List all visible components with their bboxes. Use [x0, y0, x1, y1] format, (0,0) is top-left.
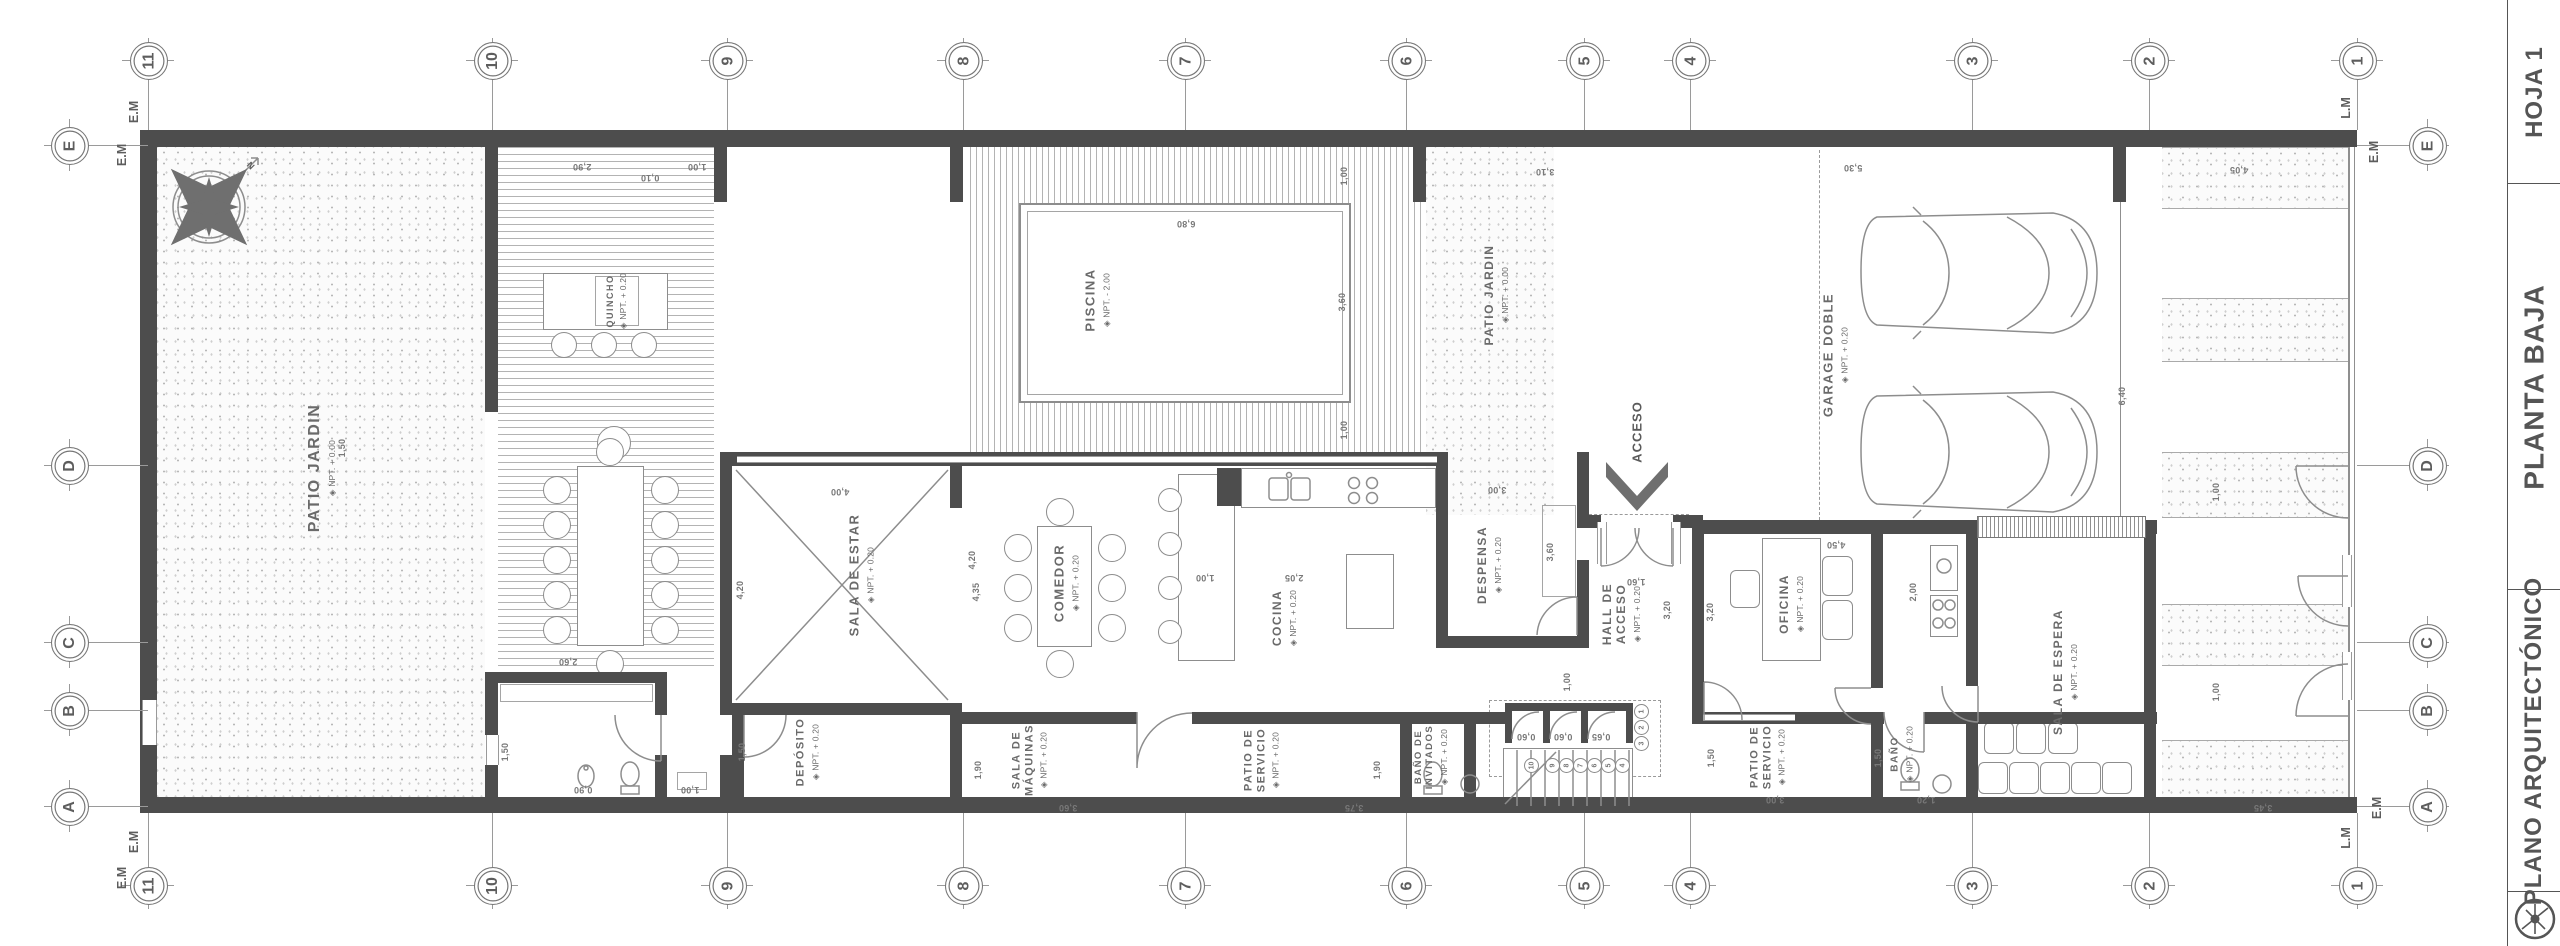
- room-name: BAÑO DE INVITADOS: [1414, 725, 1436, 790]
- room-elevation: ◈ NPT. + 0.20: [1271, 728, 1282, 792]
- room-elevation-value: NPT. + 0.20: [1632, 586, 1642, 633]
- plan-name: PLANTA BAJA: [2519, 284, 2551, 489]
- npt-marker-icon: ◈: [1288, 637, 1298, 646]
- room-elevation: ◈ NPT. + 0.20: [1070, 544, 1081, 622]
- grid-bubble-label: 8: [955, 882, 973, 891]
- dimension-label: 4,20: [735, 581, 745, 600]
- bidet: [578, 765, 594, 787]
- grid-bubble-label: 4: [1682, 882, 1700, 891]
- room-elevation-value: NPT. + 0.20: [1904, 726, 1914, 773]
- kitchenette-sink: [1937, 559, 1951, 573]
- grid-bubble-label: 2: [2141, 882, 2159, 891]
- dimension-label: 2,60: [559, 657, 578, 667]
- room-label: PISCINA◈ NPT. - 2.00: [1084, 268, 1113, 331]
- stove-burner: [1933, 618, 1943, 628]
- room-elevation: ◈ NPT. + 0.20: [810, 718, 821, 787]
- grid-bubble-label: A: [61, 801, 79, 813]
- room-name: DESPENSA: [1476, 526, 1490, 604]
- npt-marker-icon: ◈: [1493, 584, 1503, 593]
- grid-bubble-label: 10: [484, 877, 502, 895]
- dimension-label: 1,90: [973, 761, 983, 780]
- dimension-label: 6,80: [1177, 219, 1196, 229]
- room-elevation: ◈ NPT. + 0.20: [1839, 293, 1850, 417]
- room-name: HALL DE ACCESO: [1601, 583, 1629, 645]
- room-elevation-value: NPT. + 0.20: [2069, 644, 2079, 691]
- dimension-label: 3,10: [1536, 167, 1555, 177]
- grid-bubble-row: A: [2409, 788, 2447, 826]
- linework-overlay: [0, 0, 2560, 946]
- stair-tread-number: 6: [1587, 758, 1602, 773]
- stove-burner: [1945, 618, 1955, 628]
- grid-bubble-label: E: [2419, 141, 2437, 152]
- room-label: COMEDOR◈ NPT. + 0.20: [1053, 544, 1082, 622]
- dimension-label: 4,35: [971, 583, 981, 602]
- room-name: SALA DE ESTAR: [848, 514, 863, 637]
- door-arc: [744, 715, 786, 757]
- stove-burner: [1367, 478, 1378, 489]
- gate-arc: [2296, 466, 2348, 518]
- sheet-number: HOJA 1: [2521, 46, 2549, 138]
- npt-marker-icon: ◈: [1839, 374, 1849, 383]
- room-name: COMEDOR: [1053, 544, 1068, 622]
- room-label: BAÑO DE INVITADOS◈ NPT. + 0.20: [1414, 725, 1450, 790]
- room-name: DEPÓSITO: [795, 718, 808, 787]
- room-elevation: ◈ NPT. + 0.20: [1777, 725, 1788, 789]
- stair-tread-number: 5: [1601, 758, 1616, 773]
- tread-number-label: 7: [1577, 764, 1584, 768]
- npt-marker-icon: ◈: [1101, 318, 1111, 327]
- car-icon: [1861, 386, 2097, 518]
- grid-bubble-row: C: [2409, 624, 2447, 662]
- annotation-label: ACCESO: [1630, 401, 1645, 463]
- dimension-label: 1,00: [1339, 167, 1349, 186]
- grid-bubble-column: 10: [474, 42, 512, 80]
- dimension-label: 0,90: [574, 785, 593, 795]
- room-elevation: ◈ NPT. + 0.20: [1904, 726, 1915, 782]
- grid-bubble-label: C: [61, 637, 79, 649]
- grid-bubble-column: 2: [2131, 867, 2169, 905]
- dimension-label: 2,90: [573, 162, 592, 172]
- boundary-label: L.M: [2339, 827, 2353, 849]
- door-arc: [1835, 688, 1871, 724]
- grid-bubble-column: 6: [1388, 42, 1426, 80]
- dimension-label: 4,05: [2230, 165, 2249, 175]
- dimension-label: 3,00: [1488, 485, 1507, 495]
- sink-bowl: [1291, 478, 1310, 500]
- grid-bubble-row: E: [51, 127, 89, 165]
- tread-number-label: 1: [1638, 710, 1645, 714]
- grid-bubble-column: 2: [2131, 42, 2169, 80]
- grid-bubble-label: 5: [1576, 57, 1594, 66]
- grid-bubble-label: D: [2419, 460, 2437, 472]
- room-elevation-value: NPT. + 0.20: [1271, 732, 1281, 779]
- room-elevation: ◈ NPT. + 0.20: [1439, 725, 1450, 790]
- stove-burner: [1933, 600, 1943, 610]
- room-label: DESPENSA◈ NPT. + 0.20: [1476, 526, 1504, 604]
- grid-bubble-row: A: [51, 788, 89, 826]
- toilet-tank: [1901, 782, 1919, 790]
- grid-bubble-column: 5: [1566, 867, 1604, 905]
- dimension-label: 0,60: [1554, 732, 1573, 742]
- room-elevation: ◈ NPT. + 0.20: [1632, 583, 1643, 645]
- room-label: HALL DE ACCESO◈ NPT. + 0.20: [1601, 583, 1643, 645]
- room-elevation: ◈ NPT. + 0.00: [327, 404, 338, 533]
- npt-marker-icon: ◈: [1039, 779, 1049, 788]
- grid-bubble-column: 7: [1167, 42, 1205, 80]
- stair-tread-number: 9: [1545, 758, 1560, 773]
- room-label: SALA DE ESTAR◈ NPT. + 0.20: [848, 514, 877, 637]
- grid-bubble-column: 5: [1566, 42, 1604, 80]
- dimension-label: 1,00: [681, 785, 700, 795]
- stair-tread-number: 3: [1634, 736, 1649, 751]
- npt-marker-icon: ◈: [2069, 691, 2079, 700]
- grid-bubble-column: 4: [1672, 867, 1710, 905]
- grid-bubble-label: B: [61, 705, 79, 717]
- dimension-label: 4,00: [831, 487, 850, 497]
- room-label: QUINCHO◈ NPT. + 0.20: [605, 273, 629, 329]
- npt-marker-icon: ◈: [1439, 776, 1449, 785]
- room-elevation: ◈ NPT. + 0.20: [865, 514, 876, 637]
- stove-burner: [1349, 478, 1360, 489]
- dimension-label: 1,00: [2211, 683, 2221, 702]
- stair-tread-number: 8: [1559, 758, 1574, 773]
- grid-bubble-label: E: [61, 141, 79, 152]
- dimension-label: 6,40: [2117, 387, 2127, 406]
- dimension-label: 1,50: [737, 743, 747, 762]
- dimension-label: 2,05: [1285, 573, 1304, 583]
- grid-bubble-column: 3: [1954, 42, 1992, 80]
- dimension-label: 3,60: [1059, 803, 1078, 813]
- grid-bubble-label: D: [61, 460, 79, 472]
- grid-bubble-label: 8: [955, 57, 973, 66]
- title-block-logo-box: [2508, 892, 2560, 946]
- boundary-label: E.M: [115, 144, 129, 166]
- grid-bubble-row: E: [2409, 127, 2447, 165]
- dimension-label: 1,00: [688, 162, 707, 172]
- grid-bubble-label: 2: [2141, 57, 2159, 66]
- npt-marker-icon: ◈: [865, 594, 875, 603]
- room-name: PATIO JARDIN: [1483, 245, 1497, 346]
- grid-bubble-column: 9: [709, 867, 747, 905]
- dimension-label: 0,10: [641, 173, 660, 183]
- room-elevation: ◈ NPT. + 0.00: [1500, 245, 1511, 346]
- dimension-label: 3,20: [1705, 603, 1715, 622]
- grid-bubble-label: 1: [2349, 57, 2367, 66]
- room-label: OFICINA◈ NPT. + 0.20: [1778, 574, 1806, 634]
- room-elevation: ◈ NPT. + 0.20: [618, 273, 629, 329]
- room-name: PISCINA: [1084, 268, 1099, 331]
- floor-plan-sheet: HOJA 1 PLANTA BAJA PLANO ARQUITECTÓNICO …: [0, 0, 2560, 946]
- grid-bubble-label: 7: [1177, 57, 1195, 66]
- stair-tread-number: 4: [1615, 758, 1630, 773]
- gate-arc: [2296, 664, 2348, 716]
- dimension-label: 1,00: [1562, 673, 1572, 692]
- dimension-label: 1,00: [2211, 483, 2221, 502]
- boundary-label: E.M: [2370, 797, 2384, 819]
- grid-bubble-row: B: [2409, 692, 2447, 730]
- room-elevation: ◈ NPT. + 0.20: [2069, 609, 2080, 735]
- room-name: BAÑO: [1889, 726, 1901, 782]
- room-name: PATIO DE SERVICIO: [1242, 728, 1267, 792]
- dimension-label: 1,50: [1873, 749, 1883, 768]
- grid-bubble-row: D: [51, 447, 89, 485]
- room-label: SALA DE ESPERA◈ NPT. + 0.20: [2052, 609, 2080, 735]
- sink-bowl: [1269, 478, 1288, 500]
- dimension-label: 4,20: [967, 551, 977, 570]
- room-elevation-value: NPT. + 0.20: [1493, 537, 1503, 584]
- boundary-label: E.M: [2367, 141, 2381, 163]
- npt-marker-icon: ◈: [1500, 314, 1510, 323]
- stair-tread-number: 2: [1634, 720, 1649, 735]
- grid-bubble-column: 9: [709, 42, 747, 80]
- grid-bubble-label: C: [2419, 637, 2437, 649]
- grid-bubble-row: C: [51, 624, 89, 662]
- title-block: HOJA 1 PLANTA BAJA PLANO ARQUITECTÓNICO: [2507, 0, 2560, 946]
- door-arc: [1942, 686, 1978, 722]
- room-elevation: ◈ NPT. + 0.20: [1795, 574, 1806, 634]
- room-elevation: ◈ NPT. + 0.20: [1288, 590, 1299, 646]
- grid-bubble-label: 5: [1576, 882, 1594, 891]
- tread-number-label: 3: [1638, 742, 1645, 746]
- room-elevation-value: NPT. + 0.20: [1070, 555, 1080, 602]
- grid-bubble-column: 3: [1954, 867, 1992, 905]
- npt-marker-icon: ◈: [1271, 779, 1281, 788]
- firm-logo-icon: [2512, 896, 2558, 942]
- tread-number-label: 4: [1619, 764, 1626, 768]
- door-arc: [1537, 597, 1577, 635]
- grid-bubble-column: 1: [2339, 42, 2377, 80]
- boundary-label: E.M: [115, 867, 129, 889]
- dimension-label: 3,60: [1545, 543, 1555, 562]
- room-elevation: ◈ NPT. + 0.20: [1039, 724, 1050, 796]
- dimension-label: 1,00: [1339, 421, 1349, 440]
- dimension-label: 3,45: [2254, 803, 2273, 813]
- double-height-x-mark: [736, 470, 948, 700]
- boundary-label: L.M: [2339, 97, 2353, 119]
- stair-tread-number: 10: [1524, 758, 1539, 773]
- room-elevation-value: NPT. + 0.20: [1439, 729, 1449, 776]
- npt-marker-icon: ◈: [1777, 776, 1787, 785]
- npt-marker-icon: ◈: [1632, 633, 1642, 642]
- grid-bubble-label: 11: [140, 878, 158, 895]
- grid-bubble-label: 9: [719, 882, 737, 891]
- tread-number-label: 6: [1591, 764, 1598, 768]
- grid-bubble-label: 10: [484, 52, 502, 70]
- room-label: DEPÓSITO◈ NPT. + 0.20: [795, 718, 822, 787]
- npt-marker-icon: ◈: [1904, 773, 1914, 782]
- title-block-drawing-type: PLANO ARQUITECTÓNICO: [2508, 590, 2560, 892]
- npt-marker-icon: ◈: [618, 320, 628, 329]
- toilet: [621, 762, 639, 786]
- faucet: [1287, 473, 1292, 478]
- room-elevation-value: NPT. + 0.00: [327, 440, 337, 487]
- grid-bubble-column: 4: [1672, 42, 1710, 80]
- room-label: PATIO JARDIN◈ NPT. + 0.00: [306, 404, 338, 533]
- boundary-label: E.M: [127, 101, 141, 123]
- room-label: PATIO DE SERVICIO◈ NPT. + 0.20: [1242, 728, 1281, 792]
- dimension-label: 3,00: [1766, 795, 1785, 805]
- dimension-label: 1,90: [1372, 761, 1382, 780]
- dimension-label: 5,30: [1844, 163, 1863, 173]
- grid-bubble-label: 7: [1177, 882, 1195, 891]
- grid-bubble-label: A: [2419, 801, 2437, 813]
- room-label: PATIO DE SERVICIO◈ NPT. + 0.20: [1748, 725, 1787, 789]
- grid-bubble-column: 10: [474, 867, 512, 905]
- room-elevation-value: NPT. + 0.20: [1288, 590, 1298, 637]
- room-name: GARAGE DOBLE: [1822, 293, 1837, 417]
- room-elevation-value: NPT. + 0.00: [1500, 267, 1510, 314]
- room-name: SALA DE ESPERA: [2052, 609, 2066, 735]
- tread-number-label: 9: [1549, 764, 1556, 768]
- room-label: COCINA◈ NPT. + 0.20: [1271, 590, 1299, 646]
- dimension-label: 2,00: [1908, 583, 1918, 602]
- acceso-arrow-icon: [1606, 462, 1668, 511]
- room-name: QUINCHO: [605, 273, 615, 329]
- room-name: COCINA: [1271, 590, 1285, 646]
- grid-bubble-column: 8: [945, 42, 983, 80]
- room-elevation: ◈ NPT. + 0.20: [1493, 526, 1504, 604]
- dimension-label: 0,65: [1592, 732, 1611, 742]
- tread-number-label: 5: [1605, 764, 1612, 768]
- grid-bubble-column: 6: [1388, 867, 1426, 905]
- room-label: BAÑO◈ NPT. + 0.20: [1889, 726, 1915, 782]
- drawing-type: PLANO ARQUITECTÓNICO: [2521, 576, 2549, 904]
- dimension-label: 1,50: [337, 439, 347, 458]
- dimension-label: 3,60: [1337, 293, 1347, 312]
- dimension-label: 1,20: [1917, 795, 1936, 805]
- grid-bubble-column: 11: [130, 867, 168, 905]
- room-elevation-value: NPT. + 0.20: [1795, 576, 1805, 623]
- grid-bubble-label: 3: [1964, 882, 1982, 891]
- npt-marker-icon: ◈: [327, 487, 337, 496]
- door-arc: [615, 715, 661, 761]
- stove-burner: [1945, 600, 1955, 610]
- washbasin: [1933, 775, 1951, 793]
- room-label: SALA DE MÁQUINAS◈ NPT. + 0.20: [1010, 724, 1049, 796]
- dimension-label: 0,60: [1517, 732, 1536, 742]
- room-name: OFICINA: [1778, 574, 1792, 634]
- npt-marker-icon: ◈: [810, 771, 820, 780]
- dimension-label: 1,50: [500, 743, 510, 762]
- stove-burner: [1367, 493, 1378, 504]
- grid-bubble-label: B: [2419, 705, 2437, 717]
- grid-bubble-column: 11: [130, 42, 168, 80]
- dimension-label: 3,20: [1662, 601, 1672, 620]
- entry-door-arc: [1635, 528, 1673, 566]
- room-name: SALA DE MÁQUINAS: [1010, 724, 1035, 796]
- grid-bubble-label: 6: [1398, 57, 1416, 66]
- dimension-label: 1,00: [1196, 573, 1215, 583]
- grid-bubble-label: 11: [140, 53, 158, 70]
- washbasin: [1461, 775, 1479, 793]
- grid-bubble-label: 4: [1682, 57, 1700, 66]
- gate-arc: [2298, 576, 2348, 626]
- tread-number-label: 10: [1528, 762, 1535, 770]
- grid-bubble-label: 6: [1398, 882, 1416, 891]
- dimension-label: 3,75: [1345, 803, 1364, 813]
- entry-door-arc: [1601, 528, 1639, 566]
- title-block-plan-name: PLANTA BAJA: [2508, 184, 2560, 590]
- boundary-label: E.M: [127, 831, 141, 853]
- dimension-label: 1,50: [1706, 749, 1716, 768]
- tread-number-label: 8: [1563, 764, 1570, 768]
- room-name: PATIO DE SERVICIO: [1748, 725, 1773, 789]
- bidet-tap: [584, 766, 588, 770]
- stair-tread-number: 7: [1573, 758, 1588, 773]
- grid-bubble-row: D: [2409, 447, 2447, 485]
- stove-burner: [1349, 493, 1360, 504]
- grid-bubble-column: 8: [945, 867, 983, 905]
- room-label: PATIO JARDIN◈ NPT. + 0.00: [1483, 245, 1511, 346]
- room-elevation-value: NPT. + 0.20: [810, 724, 820, 771]
- grid-bubble-label: 1: [2349, 882, 2367, 891]
- dimension-label: 4,50: [1827, 540, 1846, 550]
- tread-number-label: 2: [1638, 726, 1645, 730]
- grid-bubble-row: B: [51, 692, 89, 730]
- grid-bubble-column: 7: [1167, 867, 1205, 905]
- room-elevation-value: NPT. + 0.20: [865, 547, 875, 594]
- grid-bubble-label: 9: [719, 57, 737, 66]
- door-arc: [1704, 682, 1742, 720]
- door-arc: [1137, 712, 1192, 768]
- room-label: GARAGE DOBLE◈ NPT. + 0.20: [1822, 293, 1851, 417]
- npt-marker-icon: ◈: [1795, 623, 1805, 632]
- room-elevation-value: NPT. + 0.20: [618, 273, 628, 320]
- grid-bubble-label: 3: [1964, 57, 1982, 66]
- room-elevation-value: NPT. + 0.20: [1839, 327, 1849, 374]
- room-elevation-value: NPT. + 0.20: [1777, 729, 1787, 776]
- title-block-sheet: HOJA 1: [2508, 0, 2560, 184]
- toilet-tank: [621, 786, 639, 794]
- room-elevation: ◈ NPT. - 2.00: [1101, 268, 1112, 331]
- grid-bubble-column: 1: [2339, 867, 2377, 905]
- car-icon: [1861, 207, 2097, 339]
- room-elevation-value: NPT. - 2.00: [1101, 273, 1111, 318]
- room-elevation-value: NPT. + 0.20: [1039, 732, 1049, 779]
- npt-marker-icon: ◈: [1070, 602, 1080, 611]
- room-name: PATIO JARDIN: [306, 404, 324, 533]
- stair-tread-number: 1: [1634, 704, 1649, 719]
